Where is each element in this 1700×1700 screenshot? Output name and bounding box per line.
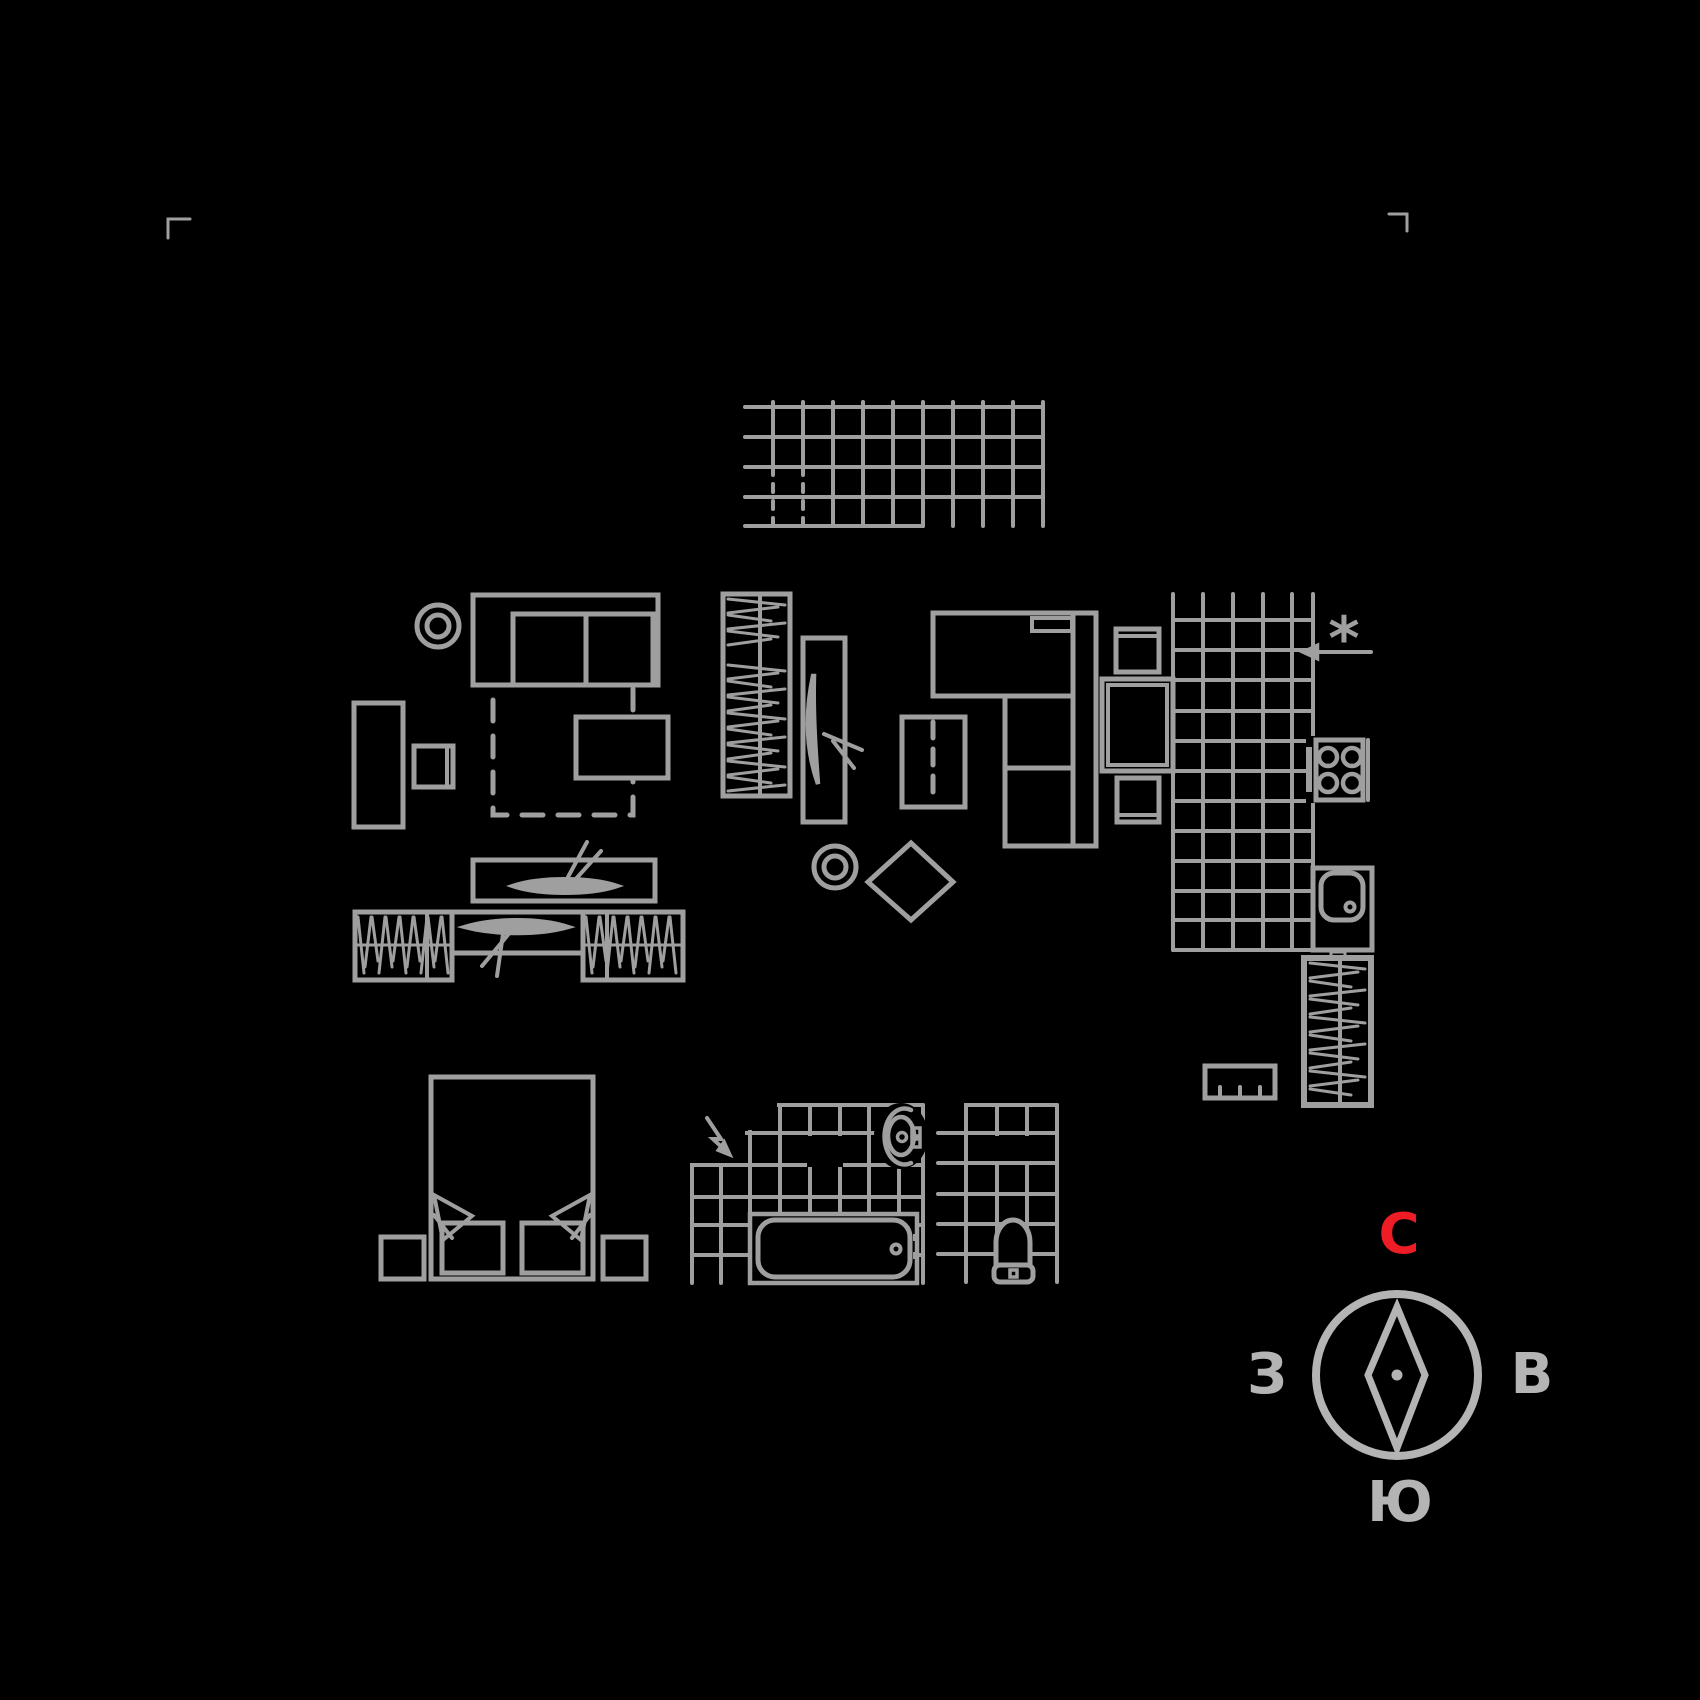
- tv-screen: [513, 879, 617, 893]
- wardrobe-hangers-bottom-8: [728, 729, 771, 735]
- wardrobe-hangers-top-3: [728, 623, 785, 629]
- shelf-right-plants-8: [642, 917, 648, 961]
- shelf-left-plants-7: [407, 917, 413, 967]
- shelf-left-plants-2: [372, 917, 378, 961]
- bathtub-tap-1: [913, 1234, 919, 1241]
- corner-mark-top-left: [168, 219, 190, 238]
- bathroom-grid-mask-1: [687, 1099, 777, 1130]
- bathtub-tap-2: [913, 1252, 919, 1259]
- wardrobe-hangers-top-5: [728, 639, 771, 645]
- sofa-seat: [513, 614, 653, 685]
- wc-gap-patch: [977, 1136, 1030, 1161]
- shelf-left-plants-5: [393, 917, 399, 961]
- bathroom-gap-patch: [807, 1136, 843, 1167]
- bed-pillow-right: [552, 1195, 590, 1240]
- shelf-right-plants-7: [635, 917, 641, 967]
- dining-table: [1102, 679, 1173, 771]
- sofa-outer: [473, 595, 658, 685]
- wardrobe-hangers-top-1: [728, 607, 778, 613]
- shelf-right-plants-4: [614, 917, 620, 967]
- plant-pot-outer: [417, 605, 459, 647]
- bed-mattress-right: [522, 1223, 583, 1273]
- floor-plant-leaf: [808, 676, 818, 784]
- floor-plan-svg: * С З В Ю: [0, 0, 1700, 1700]
- compass-label-north: С: [1378, 1202, 1419, 1267]
- wardrobe-hangers-bottom-2: [728, 681, 771, 687]
- shelf-left-plants-4: [386, 917, 392, 967]
- shelf-left-plants-8: [414, 917, 420, 961]
- toilet-bowl: [996, 1220, 1030, 1265]
- wardrobe-hangers-bottom-1: [728, 673, 778, 679]
- wardrobe-hangers-bottom-9: [728, 737, 785, 743]
- wardrobe-hangers-bottom-14: [728, 777, 771, 783]
- plant-pot-2-inner: [824, 856, 846, 878]
- wardrobe-hangers-bottom-7: [728, 721, 778, 727]
- wardrobe-hangers-bottom-10: [728, 745, 778, 751]
- desk: [354, 703, 403, 827]
- wardrobe-hangers-bottom-12: [728, 761, 785, 767]
- compass-label-east: В: [1511, 1342, 1554, 1407]
- compass-label-south: Ю: [1367, 1470, 1433, 1535]
- wardrobe-hangers-bottom-3: [728, 689, 785, 695]
- wardrobe-hangers-bottom-4: [728, 697, 778, 703]
- toilet-tank: [994, 1265, 1033, 1282]
- shelf-left-plants-1: [365, 917, 371, 967]
- wc-grid-mask: [933, 1099, 964, 1130]
- bed: [431, 1077, 593, 1279]
- wardrobe-hangers-bottom-13: [728, 769, 778, 775]
- pouf-diamond: [868, 843, 953, 920]
- pouf-inner-edge: [874, 847, 906, 876]
- wardrobe-hangers-bottom-0: [728, 665, 785, 671]
- shelf-right-plants-10: [656, 917, 662, 967]
- shelf-right-plants-11: [663, 917, 669, 961]
- wardrobe-hangers-bottom-6: [728, 713, 785, 719]
- wardrobe-hangers-bottom-15: [728, 785, 785, 791]
- furniture-layer: [168, 214, 1478, 1456]
- floor-plan-page: * С З В Ю: [0, 0, 1700, 1700]
- shelf-cable-1: [482, 930, 512, 966]
- wardrobe-hangers-bottom-5: [728, 705, 771, 711]
- wardrobe-hangers-top-0: [728, 599, 785, 605]
- compass-label-west: З: [1247, 1342, 1287, 1407]
- wardrobe-hangers-bottom-11: [728, 753, 771, 759]
- bed-pillow-left: [434, 1195, 472, 1240]
- wardrobe-hangers-top-4: [728, 631, 778, 637]
- nightstand-right: [603, 1237, 646, 1279]
- shelf-right-plants-1: [593, 917, 599, 967]
- corner-mark-top-right: [1389, 214, 1407, 231]
- plant-pot-2-outer: [814, 846, 856, 888]
- shelf-right-plants-5: [621, 917, 627, 961]
- shelf-speaker: [465, 920, 568, 933]
- coffee-table: [576, 717, 668, 778]
- stove-handle: [1306, 747, 1312, 792]
- compass-center-dot: [1392, 1370, 1403, 1381]
- shelf-left-plants-11: [435, 917, 441, 961]
- plant-pot-inner: [427, 615, 449, 637]
- bed-mattress-left: [442, 1223, 503, 1273]
- note-asterisk: *: [1328, 604, 1359, 674]
- note-leader-arrow: [1304, 646, 1317, 658]
- wardrobe-hangers-top-2: [728, 615, 771, 621]
- nightstand-left: [381, 1237, 424, 1279]
